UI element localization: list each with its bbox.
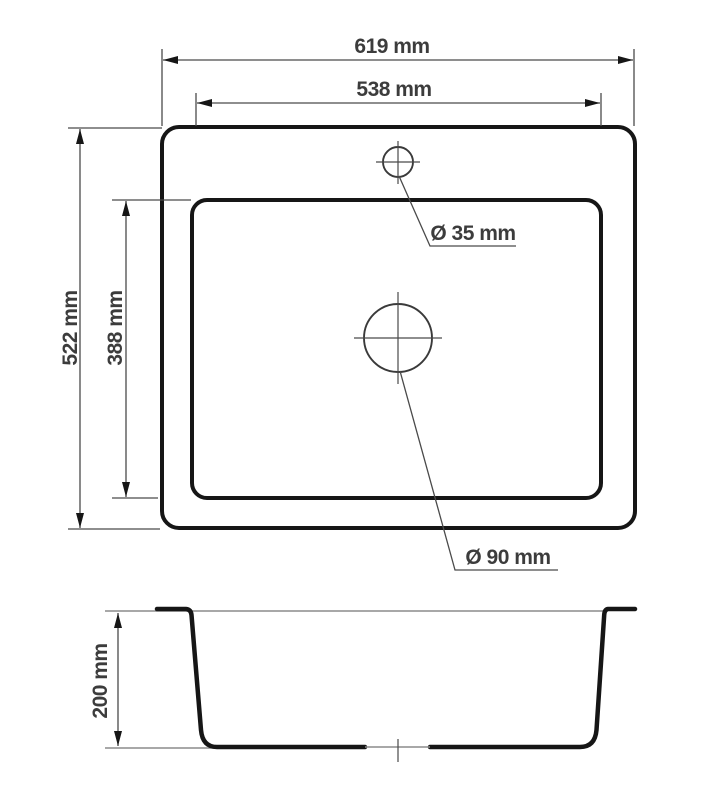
dim-inner-width: 538 mm — [196, 78, 601, 126]
dim-depth: 200 mm — [89, 613, 122, 746]
faucet-hole — [376, 141, 420, 184]
drawing-canvas: 619 mm 538 mm 522 mm — [0, 0, 708, 800]
arrow-left-icon — [163, 56, 178, 64]
arrow-down-icon — [114, 731, 122, 746]
arrow-down-icon — [122, 482, 130, 497]
faucet-hole-callout: Ø 35 mm — [399, 176, 516, 246]
drain-hole — [354, 292, 442, 384]
top-view: 619 mm 538 mm 522 mm — [59, 35, 635, 570]
sink-technical-drawing: 619 mm 538 mm 522 mm — [0, 0, 708, 800]
section-view: 200 mm — [89, 609, 635, 762]
arrow-right-icon — [618, 56, 633, 64]
section-profile-right — [430, 609, 635, 747]
arrow-up-icon — [76, 129, 84, 144]
arrow-down-icon — [76, 513, 84, 528]
faucet-hole-label: Ø 35 mm — [430, 222, 515, 245]
section-profile-left — [157, 609, 365, 747]
drain-hole-label: Ø 90 mm — [465, 546, 550, 569]
arrow-right-icon — [585, 99, 600, 107]
arrow-up-icon — [114, 613, 122, 628]
drain-hole-leader-line — [400, 371, 558, 570]
dim-outer-width-label: 619 mm — [354, 35, 429, 58]
arrow-left-icon — [197, 99, 212, 107]
dim-outer-length-label: 522 mm — [59, 290, 82, 365]
dim-inner-length-label: 388 mm — [104, 290, 127, 365]
drain-hole-callout: Ø 90 mm — [400, 371, 558, 570]
sink-bowl-outline — [192, 200, 601, 498]
arrow-up-icon — [122, 201, 130, 216]
dim-inner-length: 388 mm — [104, 200, 191, 498]
dim-depth-label: 200 mm — [89, 643, 112, 718]
dim-inner-width-label: 538 mm — [356, 78, 431, 101]
